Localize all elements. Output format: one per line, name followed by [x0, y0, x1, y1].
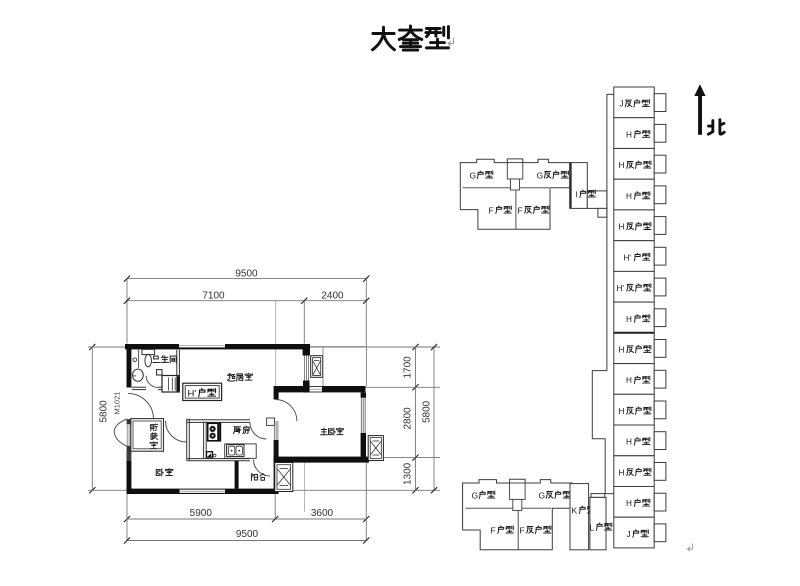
svg-text:2800: 2800: [403, 407, 414, 430]
svg-text:H: H: [626, 499, 632, 508]
svg-text:G: G: [472, 490, 479, 500]
svg-text:F: F: [518, 205, 523, 215]
svg-text:1300: 1300: [403, 462, 414, 485]
svg-text:I: I: [576, 189, 578, 199]
svg-text:H: H: [619, 407, 625, 416]
svg-text:J: J: [620, 100, 624, 109]
svg-text:5800: 5800: [99, 400, 110, 423]
svg-text:J: J: [627, 530, 631, 539]
svg-text:M1021: M1021: [113, 392, 122, 415]
svg-text:H: H: [626, 192, 632, 201]
svg-text:5900: 5900: [190, 508, 213, 519]
svg-text:F: F: [520, 525, 525, 535]
svg-text:H: H: [619, 161, 625, 170]
svg-text:H': H': [188, 388, 197, 399]
svg-text:F: F: [491, 525, 496, 535]
svg-text:5800: 5800: [422, 400, 433, 423]
svg-text:G: G: [470, 170, 477, 180]
svg-text:H': H': [617, 284, 625, 293]
svg-text:9500: 9500: [235, 268, 258, 279]
svg-text:K: K: [572, 505, 578, 515]
svg-text:7100: 7100: [202, 290, 225, 301]
svg-text:H: H: [626, 130, 632, 139]
svg-text:H: H: [619, 346, 625, 355]
svg-text:H: H: [626, 376, 632, 385]
svg-text:F: F: [489, 205, 494, 215]
svg-text:1700: 1700: [403, 356, 414, 379]
svg-text:H': H': [624, 253, 632, 262]
svg-text:3600: 3600: [311, 508, 334, 519]
svg-text:H: H: [619, 223, 625, 232]
svg-text:H: H: [626, 315, 632, 324]
svg-text:G: G: [539, 490, 546, 500]
svg-text:L: L: [590, 522, 595, 532]
svg-text:2400: 2400: [321, 290, 344, 301]
svg-text:9500: 9500: [236, 529, 259, 540]
svg-text:H: H: [626, 438, 632, 447]
svg-text:H: H: [619, 468, 625, 477]
svg-text:G: G: [537, 170, 544, 180]
